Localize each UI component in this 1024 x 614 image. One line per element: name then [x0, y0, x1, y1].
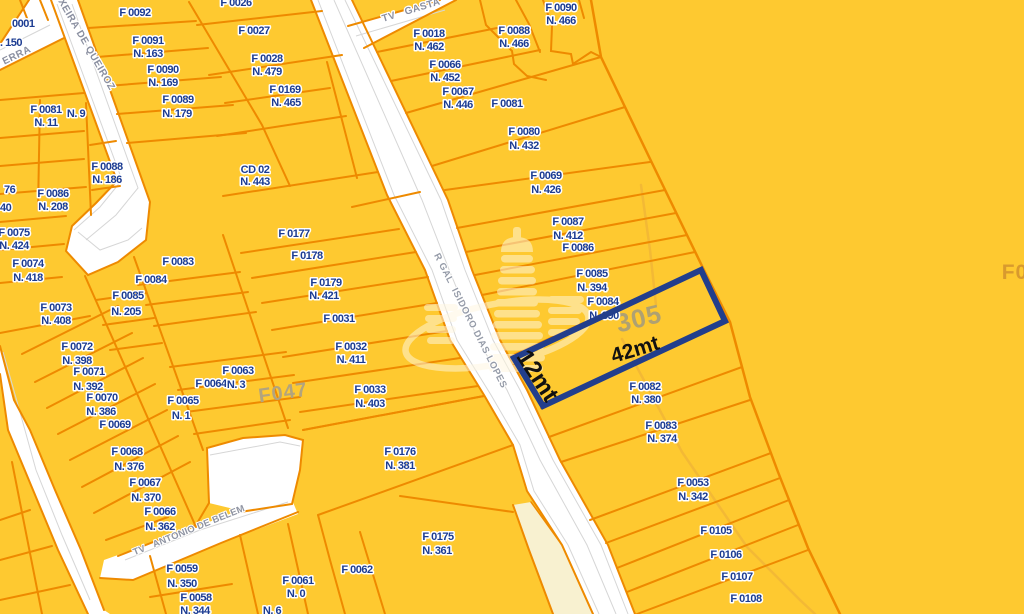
svg-text:F 0028: F 0028: [251, 53, 283, 65]
svg-text:N. 205: N. 205: [111, 306, 141, 318]
svg-text:F0: F0: [1002, 261, 1024, 284]
svg-text:F 0092: F 0092: [119, 7, 151, 19]
svg-text:40: 40: [0, 202, 12, 214]
svg-text:F 0072: F 0072: [61, 341, 93, 353]
svg-text:F 0083: F 0083: [645, 420, 677, 432]
svg-text:F 0064: F 0064: [195, 378, 228, 390]
svg-text:N. 432: N. 432: [509, 140, 539, 152]
svg-text:F 0107: F 0107: [721, 571, 753, 583]
svg-text:F 0033: F 0033: [354, 384, 386, 396]
svg-text:F 0087: F 0087: [552, 216, 584, 228]
svg-text:N. 208: N. 208: [38, 201, 68, 213]
svg-text:F 0067: F 0067: [442, 86, 474, 98]
svg-text:F 0031: F 0031: [323, 313, 355, 325]
svg-text:F 0032: F 0032: [335, 341, 367, 353]
svg-text:N. 344: N. 344: [180, 605, 211, 614]
svg-text:F 0053: F 0053: [677, 477, 709, 489]
svg-text:F 0074: F 0074: [12, 258, 45, 270]
svg-text:N. 376: N. 376: [114, 461, 144, 473]
svg-text:N. 381: N. 381: [385, 460, 415, 472]
svg-text:F 0169: F 0169: [269, 84, 301, 96]
svg-text:N. 462: N. 462: [414, 41, 444, 53]
svg-text:F 0018: F 0018: [413, 28, 445, 40]
svg-text:F 0066: F 0066: [144, 506, 176, 518]
svg-text:F 0089: F 0089: [162, 94, 194, 106]
svg-text:N. 342: N. 342: [678, 491, 708, 503]
svg-text:F 0083: F 0083: [162, 256, 194, 268]
svg-text:F 0088: F 0088: [91, 161, 123, 173]
svg-text:F 0106: F 0106: [710, 549, 742, 561]
svg-text:N. 418: N. 418: [13, 272, 43, 284]
svg-text:F 0027: F 0027: [238, 25, 270, 37]
svg-text:N. 408: N. 408: [41, 315, 71, 327]
svg-text:F 0071: F 0071: [73, 366, 105, 378]
svg-text:F 0080: F 0080: [508, 126, 540, 138]
svg-text:N. 380: N. 380: [631, 394, 661, 406]
svg-text:F 0108: F 0108: [730, 593, 762, 605]
svg-text:N. 370: N. 370: [131, 492, 161, 504]
svg-text:N. 179: N. 179: [162, 108, 192, 120]
svg-text:N. 186: N. 186: [92, 174, 122, 186]
svg-text:N. 466: N. 466: [546, 15, 576, 27]
svg-text:CD 02: CD 02: [241, 164, 270, 176]
svg-text:N. 169: N. 169: [148, 77, 178, 89]
svg-text:F 0026: F 0026: [220, 0, 252, 9]
svg-text:N. 374: N. 374: [647, 433, 678, 445]
svg-text:N. 350: N. 350: [167, 578, 197, 590]
svg-text:F 0178: F 0178: [291, 250, 323, 262]
svg-text:N. 443: N. 443: [240, 176, 270, 188]
svg-text:F 0084: F 0084: [135, 274, 168, 286]
svg-text:N. 421: N. 421: [309, 290, 339, 302]
svg-text:F 0090: F 0090: [545, 2, 577, 14]
svg-text:F 0063: F 0063: [222, 365, 254, 377]
svg-text:0001: 0001: [12, 18, 35, 30]
svg-text:F 0065: F 0065: [167, 395, 199, 407]
svg-text:N. 3: N. 3: [227, 379, 246, 391]
svg-text:F 0058: F 0058: [180, 592, 212, 604]
svg-text:76: 76: [4, 184, 16, 196]
svg-text:N. 386: N. 386: [86, 406, 116, 418]
svg-text:N. 163: N. 163: [133, 48, 163, 60]
svg-text:F 0069: F 0069: [530, 170, 562, 182]
svg-text:F 0086: F 0086: [562, 242, 594, 254]
svg-text:F 0085: F 0085: [576, 268, 608, 280]
svg-text:N. 426: N. 426: [531, 184, 561, 196]
svg-text:N. 424: N. 424: [0, 240, 30, 252]
svg-text:F 0176: F 0176: [384, 446, 416, 458]
svg-text:F 0067: F 0067: [129, 477, 161, 489]
svg-text:F 0086: F 0086: [37, 188, 69, 200]
svg-text:N. 11: N. 11: [34, 117, 58, 129]
svg-text:F 0075: F 0075: [0, 227, 30, 239]
svg-text:N. 1: N. 1: [172, 410, 191, 422]
svg-text:N. 362: N. 362: [145, 521, 175, 533]
svg-text:N. 466: N. 466: [499, 38, 529, 50]
svg-text:N. 361: N. 361: [422, 545, 452, 557]
svg-text:F 0059: F 0059: [166, 563, 198, 575]
svg-text:N. 403: N. 403: [355, 398, 385, 410]
svg-text:N. 394: N. 394: [577, 282, 608, 294]
svg-text:F 0090: F 0090: [147, 64, 179, 76]
svg-text:N. 446: N. 446: [443, 99, 473, 111]
svg-text:F 0066: F 0066: [429, 59, 461, 71]
svg-text:N. 452: N. 452: [430, 72, 460, 84]
svg-text:N. 9: N. 9: [67, 108, 86, 120]
svg-text:N. 465: N. 465: [271, 97, 301, 109]
svg-text:F 0061: F 0061: [282, 575, 314, 587]
svg-text:F 0084: F 0084: [587, 296, 620, 308]
svg-text:F 0068: F 0068: [111, 446, 143, 458]
svg-text:F 0088: F 0088: [498, 25, 530, 37]
svg-text:F 0085: F 0085: [112, 290, 144, 302]
svg-text:N. 479: N. 479: [252, 66, 282, 78]
svg-text:. 150: . 150: [0, 37, 22, 49]
svg-text:F 0179: F 0179: [310, 277, 342, 289]
svg-text:F 0175: F 0175: [422, 531, 454, 543]
svg-text:F 0091: F 0091: [132, 35, 164, 47]
svg-text:F 0105: F 0105: [700, 525, 732, 537]
svg-text:N. 0: N. 0: [287, 588, 306, 600]
svg-text:F 0073: F 0073: [40, 302, 72, 314]
svg-text:F 0177: F 0177: [278, 228, 310, 240]
svg-text:N. 6: N. 6: [263, 605, 282, 614]
svg-text:F 0081: F 0081: [30, 104, 62, 116]
svg-text:F 0082: F 0082: [629, 381, 661, 393]
svg-text:F 0062: F 0062: [341, 564, 373, 576]
svg-text:N. 412: N. 412: [553, 230, 583, 242]
svg-text:F 0070: F 0070: [86, 392, 118, 404]
svg-text:N. 411: N. 411: [337, 354, 366, 366]
svg-text:F 0081: F 0081: [491, 98, 523, 110]
svg-text:F 0069: F 0069: [99, 419, 131, 431]
